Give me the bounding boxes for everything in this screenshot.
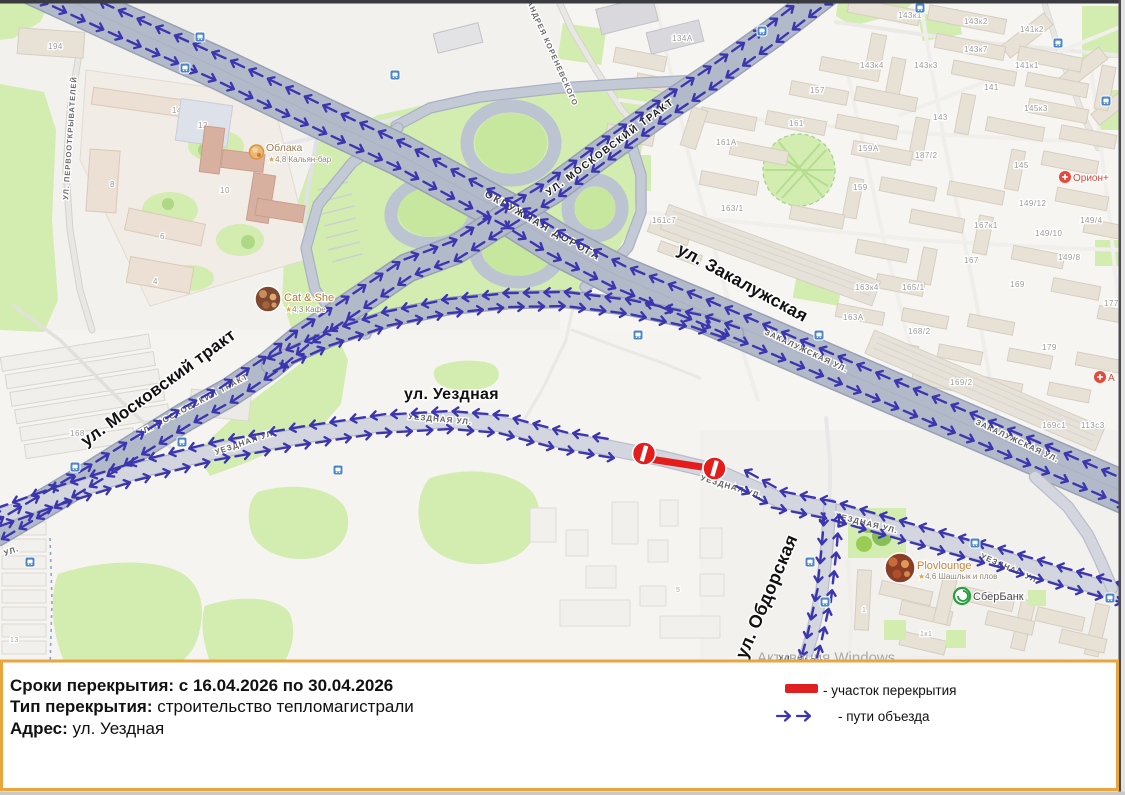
svg-text:167к1: 167к1 bbox=[974, 221, 998, 230]
svg-text:141к1: 141к1 bbox=[1015, 61, 1039, 70]
svg-text:143: 143 bbox=[933, 113, 948, 122]
svg-text:ул. Уездная: ул. Уездная bbox=[404, 386, 499, 403]
svg-text:5: 5 bbox=[676, 587, 680, 594]
svg-text:СберБанк: СберБанк bbox=[973, 591, 1024, 603]
svg-text:161А: 161А bbox=[716, 138, 737, 147]
svg-text:143к2: 143к2 bbox=[964, 17, 988, 26]
svg-text:13: 13 bbox=[10, 637, 19, 644]
svg-text:187/2: 187/2 bbox=[915, 151, 938, 160]
svg-text:149/4: 149/4 bbox=[1080, 216, 1103, 225]
svg-text:★4,6 Шашлык и плов: ★4,6 Шашлык и плов bbox=[918, 572, 997, 581]
svg-text:6: 6 bbox=[160, 232, 165, 241]
svg-text:149/10: 149/10 bbox=[1035, 229, 1063, 238]
svg-text:Сроки перекрытия: с 16.04.2026: Сроки перекрытия: с 16.04.2026 по 30.04.… bbox=[10, 676, 393, 695]
svg-text:Орион+: Орион+ bbox=[1073, 173, 1109, 184]
svg-text:1к1: 1к1 bbox=[920, 631, 932, 638]
svg-text:145: 145 bbox=[1014, 161, 1029, 170]
svg-text:194: 194 bbox=[48, 42, 63, 51]
svg-text:Тип перекрытия: строительство: Тип перекрытия: строительство тепломагис… bbox=[10, 697, 414, 716]
svg-text:Адрес: ул. Уездная: Адрес: ул. Уездная bbox=[10, 719, 164, 738]
svg-text:177: 177 bbox=[1104, 299, 1119, 308]
svg-text:145к3: 145к3 bbox=[1024, 104, 1048, 113]
svg-text:159А: 159А bbox=[858, 144, 879, 153]
svg-text:134А: 134А bbox=[672, 34, 693, 43]
svg-text:8: 8 bbox=[110, 180, 115, 189]
svg-text:- пути объезда: - пути объезда bbox=[838, 709, 930, 724]
svg-text:167: 167 bbox=[964, 256, 979, 265]
svg-text:169с1: 169с1 bbox=[1042, 421, 1066, 430]
svg-text:141: 141 bbox=[984, 83, 999, 92]
svg-text:143к3: 143к3 bbox=[914, 61, 938, 70]
svg-text:163/1: 163/1 bbox=[721, 204, 744, 213]
svg-text:А: А bbox=[1108, 373, 1115, 384]
svg-text:161: 161 bbox=[789, 119, 804, 128]
svg-text:163А: 163А bbox=[843, 313, 864, 322]
svg-text:143к4: 143к4 bbox=[860, 61, 884, 70]
svg-text:159: 159 bbox=[853, 183, 868, 192]
svg-text:★4,8 Кальян-бар: ★4,8 Кальян-бар bbox=[268, 155, 332, 164]
svg-text:157: 157 bbox=[810, 86, 825, 95]
svg-text:149/12: 149/12 bbox=[1019, 199, 1047, 208]
svg-text:★4,3 Кафе: ★4,3 Кафе bbox=[285, 305, 326, 314]
svg-text:10: 10 bbox=[220, 186, 230, 195]
svg-text:169: 169 bbox=[1010, 280, 1025, 289]
svg-text:113с3: 113с3 bbox=[1081, 421, 1105, 430]
svg-text:Cat & She: Cat & She bbox=[284, 292, 334, 304]
svg-text:Plovlounge: Plovlounge bbox=[917, 560, 971, 572]
svg-text:Облака: Облака bbox=[266, 142, 303, 154]
svg-text:1: 1 bbox=[862, 607, 866, 614]
svg-text:179: 179 bbox=[1042, 343, 1057, 352]
svg-text:161с7: 161с7 bbox=[652, 216, 676, 225]
svg-text:163к4: 163к4 bbox=[855, 283, 879, 292]
svg-text:141к2: 141к2 bbox=[1020, 25, 1044, 34]
svg-text:- участок перекрытия: - участок перекрытия bbox=[823, 683, 956, 698]
svg-text:4: 4 bbox=[153, 277, 158, 286]
svg-text:168/2: 168/2 bbox=[908, 327, 931, 336]
svg-text:143к7: 143к7 bbox=[964, 45, 988, 54]
svg-text:165/1: 165/1 bbox=[902, 283, 925, 292]
svg-text:149/8: 149/8 bbox=[1058, 253, 1081, 262]
svg-text:169/2: 169/2 bbox=[950, 378, 973, 387]
